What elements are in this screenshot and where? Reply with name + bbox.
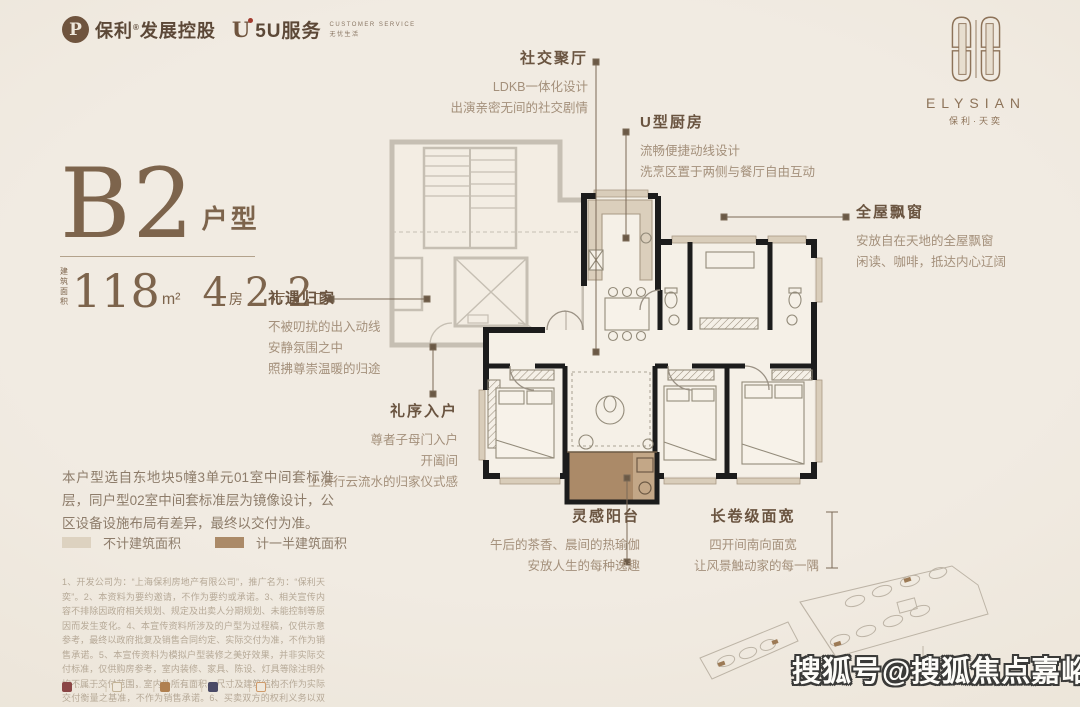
- callout-line: 安放自在天地的全屋飘窗: [856, 231, 1056, 252]
- 5u-tagline-cn: 无忧生活: [330, 32, 416, 39]
- social-icon: [112, 682, 122, 692]
- poly-logo-icon: P: [62, 16, 89, 43]
- callout-title: 灵感阳台: [478, 506, 640, 527]
- window-sills: [479, 190, 822, 484]
- 5u-logo: U 5U服务 CUSTOMER SERVICE 无忧生活: [232, 16, 416, 43]
- doors: [510, 290, 769, 390]
- callout-title: U型厨房: [640, 112, 850, 133]
- unit-walls: [486, 196, 814, 476]
- social-icon: [208, 682, 218, 692]
- callout-homecoming: 礼遇归家 不被叨扰的出入动线 安静氛围之中 照拂尊崇温暖的归途: [268, 288, 443, 380]
- social-icon: [160, 682, 170, 692]
- social-media-row: ····· ·· ·· | ···· ·· ·· | ···· ·· ·· | …: [62, 682, 291, 692]
- callout-line: 安静氛围之中: [268, 338, 443, 359]
- width-measure-line: [826, 512, 838, 568]
- unit-description: 本户型选自东地块5幢3单元01室中间套标准层，同户型02室中间套标准层为镜像设计…: [62, 466, 334, 535]
- callout-line: 不被叨扰的出入动线: [268, 317, 443, 338]
- legend-swatch-excluded: [62, 537, 91, 548]
- 5u-taglines: CUSTOMER SERVICE 无忧生活: [330, 20, 416, 38]
- callout-line: 让风景触动家的每一隅: [694, 556, 812, 577]
- social-chip: ····· ·· ··: [62, 682, 100, 692]
- social-icon: [62, 682, 72, 692]
- callout-line: 安放人生的每种逸趣: [478, 556, 640, 577]
- balcony: [567, 452, 657, 502]
- callout-line: 洗烹区置于两侧与餐厅自由互动: [640, 162, 850, 183]
- area-label: 建筑面积: [60, 267, 68, 311]
- callout-title: 礼序入户: [295, 401, 458, 422]
- elysian-logo: ELYSIAN 保利·天奕: [916, 12, 1036, 127]
- furniture: [488, 200, 812, 464]
- legend-swatch-half: [215, 537, 244, 548]
- room-count: 4: [202, 275, 227, 311]
- poly-logo-text: 保利®发展控股: [95, 17, 216, 43]
- callout-balcony: 灵感阳台 午后的茶香、晨间的热瑜伽 安放人生的每种逸趣: [478, 506, 640, 577]
- elysian-emblem-icon: [947, 12, 1005, 86]
- 5u-logo-icon: U: [232, 19, 250, 40]
- callout-line: 闲读、咖啡，抵达内心辽阔: [856, 252, 1056, 273]
- area-value: 118: [72, 272, 160, 311]
- 5u-tagline-en: CUSTOMER SERVICE: [330, 22, 416, 29]
- poly-logo: P 保利®发展控股: [62, 16, 216, 43]
- callout-line: 午后的茶香、晨间的热瑜伽: [478, 535, 640, 556]
- callout-kitchen: U型厨房 流畅便捷动线设计 洗烹区置于两侧与餐厅自由互动: [640, 112, 850, 183]
- callout-title: 社交聚厅: [430, 48, 588, 69]
- callout-bay-window: 全屋飘窗 安放自在天地的全屋飘窗 闲读、咖啡，抵达内心辽阔: [856, 202, 1056, 273]
- callout-line: 流畅便捷动线设计: [640, 141, 850, 162]
- callout-title: 礼遇归家: [268, 288, 443, 309]
- legend-label-excluded: 不计建筑面积: [103, 533, 181, 552]
- header-logos: P 保利®发展控股 U 5U服务 CUSTOMER SERVICE 无忧生活: [62, 16, 416, 43]
- area-unit: m²: [162, 291, 181, 311]
- hall-count: 2: [245, 275, 270, 311]
- callout-line: 出演亲密无间的社交剧情: [430, 98, 588, 119]
- callout-bay-width: 长卷级面宽 四开间南向面宽 让风景触动家的每一隅: [694, 506, 812, 577]
- floorplan-poster: P 保利®发展控股 U 5U服务 CUSTOMER SERVICE 无忧生活 E…: [0, 0, 1080, 707]
- callout-title: 长卷级面宽: [694, 506, 812, 527]
- social-chip: ···· ·· ··: [112, 682, 148, 692]
- callout-line: 尊者子母门入户: [295, 430, 458, 451]
- social-chip: ···· ·· ··: [208, 682, 244, 692]
- sohu-watermark: 搜狐号@搜狐焦点嘉峪关站: [792, 648, 1080, 690]
- callout-line: 四开间南向面宽: [694, 535, 812, 556]
- callout-line: 照拂尊崇温暖的归途: [268, 359, 443, 380]
- room-unit: 房: [229, 289, 243, 311]
- social-chip: ···· ·· ··: [160, 682, 196, 692]
- callout-line: LDKB一体化设计: [430, 77, 588, 98]
- area-legend: 不计建筑面积 计一半建筑面积: [62, 533, 347, 552]
- unit-code: B2: [60, 160, 196, 248]
- callout-social-hall: 社交聚厅 LDKB一体化设计 出演亲密无间的社交剧情: [430, 48, 588, 119]
- elysian-name: ELYSIAN: [916, 95, 1036, 111]
- unit-floor: [486, 196, 814, 476]
- unit-type-suffix: 户型: [202, 199, 260, 248]
- 5u-label: 5U服务: [255, 16, 321, 43]
- legend-label-half: 计一半建筑面积: [256, 533, 347, 552]
- social-icon: [256, 682, 266, 692]
- social-chip: ···· ·· ··: [256, 682, 292, 692]
- elysian-cn-name: 保利·天奕: [916, 114, 1036, 127]
- callout-title: 全屋飘窗: [856, 202, 1056, 223]
